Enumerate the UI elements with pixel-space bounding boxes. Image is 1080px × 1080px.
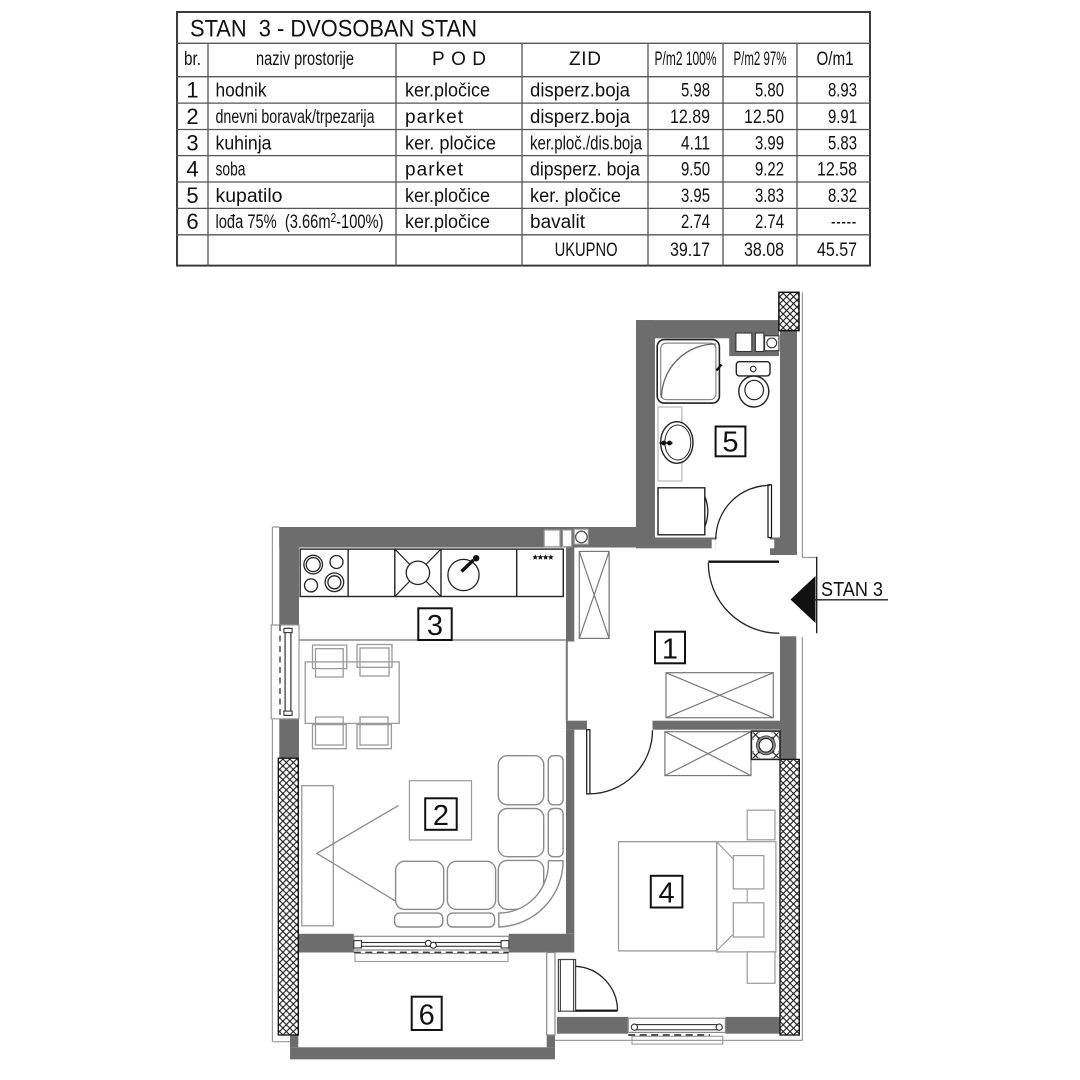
svg-text:-----: -----	[831, 212, 857, 233]
svg-text:parket: parket	[405, 107, 464, 128]
svg-text:parket: parket	[405, 159, 464, 180]
svg-text:disperz.boja: disperz.boja	[530, 107, 630, 128]
svg-text:39.17: 39.17	[670, 240, 710, 261]
svg-text:ker.ploč./dis.boja: ker.ploč./dis.boja	[530, 133, 642, 154]
svg-text:5.80: 5.80	[755, 81, 784, 102]
svg-text:disperz.boja: disperz.boja	[530, 81, 630, 102]
svg-text:P/m2 97%: P/m2 97%	[734, 49, 787, 70]
svg-text:kupatilo: kupatilo	[216, 186, 283, 207]
svg-text:O/m1: O/m1	[817, 49, 854, 70]
svg-text:8.93: 8.93	[828, 81, 857, 102]
svg-text:1: 1	[662, 634, 678, 666]
svg-text:4.11: 4.11	[681, 133, 710, 154]
svg-text:2.74: 2.74	[681, 212, 710, 233]
svg-text:STAN 3 - DVOSOBAN STAN: STAN 3 - DVOSOBAN STAN	[190, 16, 477, 43]
svg-text:ker.pločice: ker.pločice	[405, 81, 490, 102]
svg-text:hodnik: hodnik	[216, 81, 267, 102]
svg-text:5.83: 5.83	[828, 133, 857, 154]
svg-text:12.58: 12.58	[817, 159, 857, 180]
svg-text:6: 6	[419, 1000, 435, 1032]
svg-text:3: 3	[186, 130, 198, 155]
svg-text:UKUPNO: UKUPNO	[555, 240, 618, 261]
svg-text:8.32: 8.32	[828, 186, 857, 207]
svg-text:5: 5	[186, 183, 198, 208]
svg-text:ker. pločice: ker. pločice	[530, 186, 621, 207]
svg-text:5.98: 5.98	[681, 81, 710, 102]
svg-text:12.89: 12.89	[670, 107, 710, 128]
svg-text:2.74: 2.74	[755, 212, 784, 233]
svg-text:38.08: 38.08	[744, 240, 784, 261]
svg-text:ZID: ZID	[569, 49, 601, 70]
svg-text:6: 6	[186, 209, 198, 234]
svg-text:3: 3	[427, 610, 443, 642]
svg-text:9.22: 9.22	[755, 159, 784, 180]
svg-text:ker.pločice: ker.pločice	[405, 186, 490, 207]
svg-text:soba: soba	[216, 159, 246, 180]
svg-text:12.50: 12.50	[744, 107, 784, 128]
svg-text:POD: POD	[432, 49, 486, 70]
svg-text:3.95: 3.95	[681, 186, 710, 207]
svg-text:br.: br.	[184, 49, 201, 70]
svg-text:ker.pločice: ker.pločice	[405, 212, 490, 233]
svg-text:bavalit: bavalit	[530, 212, 586, 233]
svg-text:STAN 3: STAN 3	[821, 579, 883, 601]
svg-text:dipsperz. boja: dipsperz. boja	[530, 159, 640, 180]
svg-text:1: 1	[186, 78, 198, 103]
svg-text:2: 2	[186, 104, 198, 129]
svg-text:5: 5	[722, 427, 738, 459]
svg-text:4: 4	[659, 878, 675, 910]
svg-text:45.57: 45.57	[817, 240, 857, 261]
svg-text:9.91: 9.91	[828, 107, 857, 128]
svg-text:kuhinja: kuhinja	[216, 133, 272, 154]
svg-text:9.50: 9.50	[681, 159, 710, 180]
svg-text:4: 4	[186, 156, 198, 181]
svg-text:2: 2	[433, 800, 449, 832]
svg-text:naziv prostorije: naziv prostorije	[256, 49, 354, 70]
svg-text:3.99: 3.99	[755, 133, 784, 154]
svg-text:dnevni boravak/trpezarija: dnevni boravak/trpezarija	[216, 107, 375, 128]
svg-text:3.83: 3.83	[755, 186, 784, 207]
svg-text:lođa 75% (3.66m2-100%): lođa 75% (3.66m2-100%)	[216, 210, 384, 233]
svg-text:ker. pločice: ker. pločice	[405, 133, 496, 154]
svg-text:P/m2 100%: P/m2 100%	[655, 49, 717, 70]
